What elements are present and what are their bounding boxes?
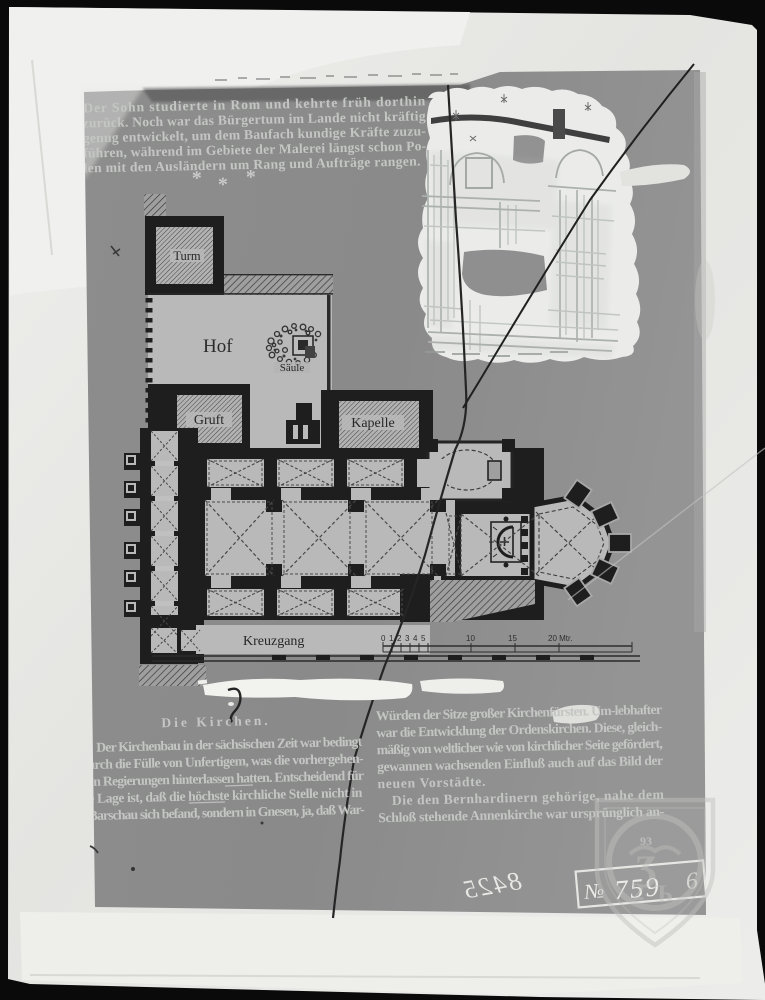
svg-text:4: 4 xyxy=(413,634,418,643)
svg-text:Turm: Turm xyxy=(173,249,201,263)
svg-text:5: 5 xyxy=(421,634,426,643)
svg-text:10: 10 xyxy=(466,634,475,643)
svg-text:Ъ: Ъ xyxy=(654,881,673,908)
svg-text:Kreuzgang: Kreuzgang xyxy=(243,634,304,649)
svg-text:Die Kirchen.: Die Kirchen. xyxy=(161,713,271,730)
svg-text:Hof: Hof xyxy=(203,336,233,357)
svg-text:15: 15 xyxy=(508,634,517,643)
svg-text:20 Mtr.: 20 Mtr. xyxy=(548,634,572,643)
svg-text:2: 2 xyxy=(632,879,645,906)
svg-text:neuen Vorstädte.: neuen Vorstädte. xyxy=(377,774,485,791)
svg-text:Gruft: Gruft xyxy=(194,413,224,428)
svg-text:Kapelle: Kapelle xyxy=(351,416,395,431)
svg-text:*: * xyxy=(246,166,256,188)
svg-text:1: 1 xyxy=(389,634,394,643)
svg-text:Säule: Säule xyxy=(280,362,305,374)
svg-text:3: 3 xyxy=(405,634,410,643)
svg-text:0: 0 xyxy=(381,634,386,643)
svg-text:*: * xyxy=(218,174,228,196)
svg-text:*: * xyxy=(192,167,202,189)
